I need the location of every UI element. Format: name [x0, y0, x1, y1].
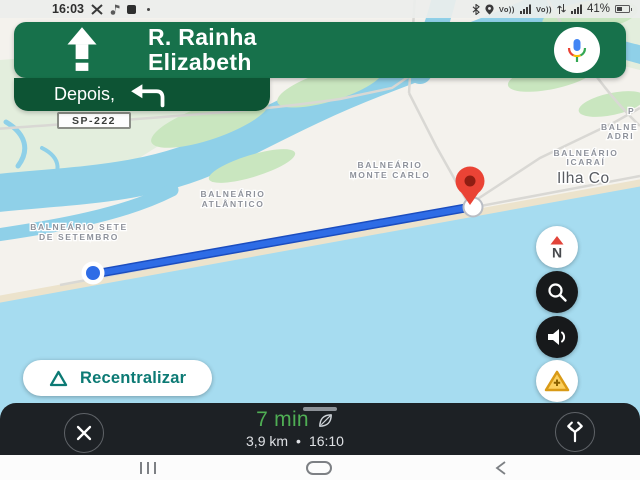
label-sete-de-setembro: BALNEÁRIO SETE	[30, 222, 128, 232]
trip-summary: 7 min 3,9 km • 16:10	[246, 408, 344, 449]
status-bar: 16:03 Vo)) Vo))	[0, 0, 640, 18]
signal-bars-icon	[571, 4, 582, 14]
search-button[interactable]	[536, 271, 578, 313]
volte-indicator: Vo))	[536, 5, 552, 14]
app-notification-icon	[127, 5, 136, 14]
arrival-time: 16:10	[309, 433, 344, 449]
compass-button[interactable]: N	[536, 226, 578, 268]
svg-text:N: N	[552, 245, 562, 261]
current-location-dot	[82, 262, 105, 285]
next-maneuver-banner[interactable]: Depois,	[14, 78, 270, 111]
label-monte-carlo: BALNEÁRIO	[358, 160, 423, 170]
volte-indicator: Vo))	[499, 5, 515, 14]
home-button[interactable]	[306, 461, 332, 475]
location-icon	[485, 4, 494, 15]
report-button[interactable]	[536, 360, 578, 402]
battery-percent: 41%	[587, 3, 610, 15]
svg-text:DE SETEMBRO: DE SETEMBRO	[39, 232, 119, 242]
svg-text:ICARAÍ: ICARAÍ	[567, 157, 606, 167]
road-shield-sp222: SP-222	[57, 112, 131, 129]
music-note-icon	[110, 3, 120, 15]
turn-left-arrow-icon	[129, 80, 167, 110]
next-street-name: R. Rainha Elizabeth	[148, 25, 257, 75]
speaker-icon	[546, 326, 568, 348]
trip-info-sheet: 7 min 3,9 km • 16:10	[0, 403, 640, 455]
cut-icon	[91, 4, 103, 15]
route-options-icon	[563, 421, 587, 443]
recenter-button[interactable]: Recentralizar	[23, 360, 212, 396]
end-navigation-button[interactable]	[64, 413, 104, 453]
google-mic-icon	[565, 37, 589, 64]
eco-leaf-icon	[317, 412, 334, 429]
svg-text:ATLÂNTICO: ATLÂNTICO	[202, 198, 265, 209]
signal-bars-icon	[520, 4, 531, 14]
navigation-instruction-banner[interactable]: R. Rainha Elizabeth	[14, 22, 626, 78]
label-atlantico: BALNEÁRIO	[201, 189, 266, 199]
battery-icon	[615, 5, 630, 13]
trip-distance: 3,9 km	[246, 433, 288, 449]
hazard-warning-icon	[544, 369, 570, 393]
sound-toggle-button[interactable]	[536, 316, 578, 358]
android-navigation-bar	[0, 455, 640, 480]
bluetooth-icon	[472, 4, 480, 15]
google-maps-navigation-screen: BALNEÁRIO MONTE CARLO BALNEÁRIO ICARAÍ B…	[0, 0, 640, 480]
svg-text:MONTE CARLO: MONTE CARLO	[350, 170, 431, 180]
compass-north-icon: N	[546, 234, 568, 260]
data-arrows-icon	[557, 4, 566, 14]
close-icon	[75, 424, 93, 442]
clock: 16:03	[52, 2, 84, 16]
recenter-triangle-icon	[49, 370, 68, 387]
svg-text:ADRI: ADRI	[607, 131, 634, 141]
recents-button[interactable]	[140, 462, 156, 474]
label-city: Ilha Co	[557, 170, 610, 187]
recenter-label: Recentralizar	[80, 369, 186, 388]
alternate-routes-button[interactable]	[555, 412, 595, 452]
back-button[interactable]	[494, 460, 508, 476]
label-p-clipped: P	[628, 106, 635, 116]
voice-mic-button[interactable]	[554, 27, 600, 73]
dot-icon	[147, 8, 150, 11]
next-maneuver-label: Depois,	[54, 84, 115, 105]
search-icon	[546, 281, 568, 303]
eta-time: 7 min	[256, 408, 309, 432]
straight-arrow-icon	[62, 26, 102, 74]
dot-separator: •	[296, 433, 301, 449]
